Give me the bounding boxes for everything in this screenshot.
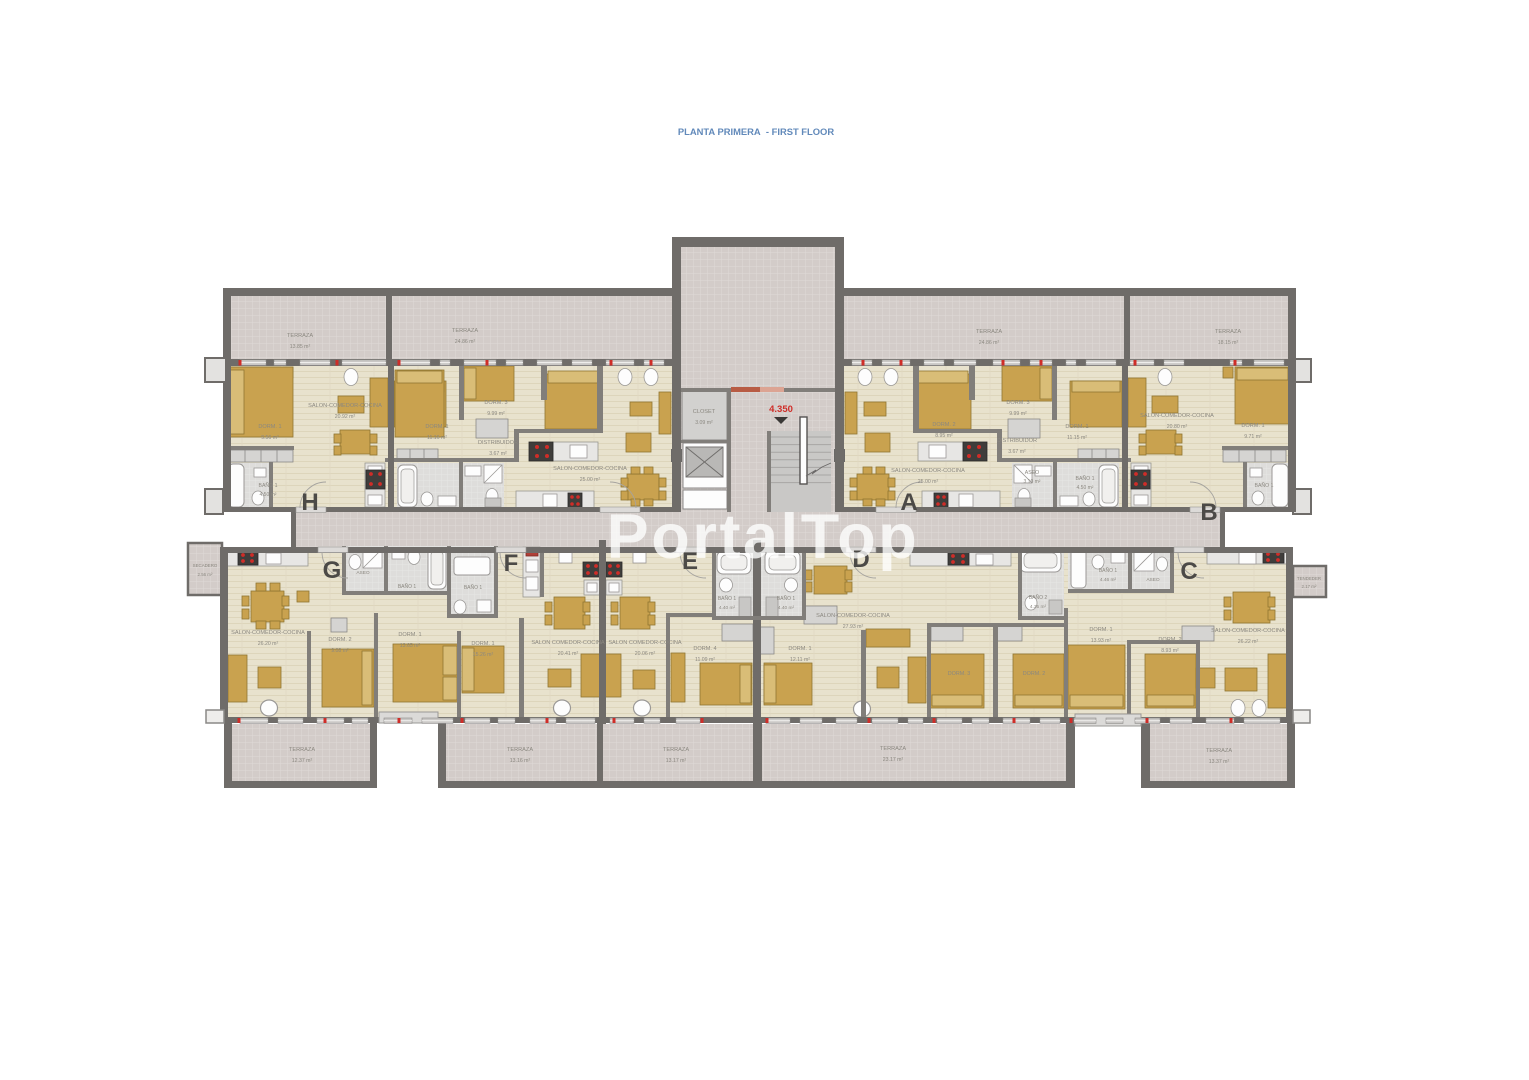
svg-text:DORM. 2: DORM. 2 xyxy=(1158,637,1181,643)
svg-text:24.86 m²: 24.86 m² xyxy=(455,339,476,345)
svg-text:TERRAZA: TERRAZA xyxy=(507,747,533,753)
svg-text:DORM. 1: DORM. 1 xyxy=(398,632,421,638)
svg-text:20.06 m²: 20.06 m² xyxy=(635,651,656,657)
svg-text:BAÑO 1: BAÑO 1 xyxy=(258,482,277,489)
svg-text:ASEO: ASEO xyxy=(1025,470,1039,476)
svg-text:TERRAZA: TERRAZA xyxy=(289,747,315,753)
svg-text:4.50 m²: 4.50 m² xyxy=(1077,485,1094,491)
svg-text:4.40 m²: 4.40 m² xyxy=(778,605,795,611)
svg-text:DORM. 1: DORM. 1 xyxy=(1089,627,1112,633)
svg-text:PLANTA PRIMERA - FIRST FLOOR: PLANTA PRIMERA - FIRST FLOOR xyxy=(678,126,834,137)
svg-text:CLOSET: CLOSET xyxy=(693,409,716,415)
svg-text:3.10 m²: 3.10 m² xyxy=(1024,479,1041,485)
svg-text:4.40 m²: 4.40 m² xyxy=(719,605,736,611)
svg-text:BAÑO 1: BAÑO 1 xyxy=(1075,475,1094,482)
svg-text:BAÑO 1: BAÑO 1 xyxy=(398,583,417,590)
svg-text:3.09 m²: 3.09 m² xyxy=(695,420,713,426)
svg-text:4.350: 4.350 xyxy=(769,404,793,415)
svg-text:13.93 m²: 13.93 m² xyxy=(1091,638,1112,644)
svg-text:BAÑO 1: BAÑO 1 xyxy=(777,595,796,602)
svg-text:4.50 m²: 4.50 m² xyxy=(260,492,277,498)
svg-text:DORM. 1: DORM. 1 xyxy=(425,424,448,430)
svg-text:25.00 m²: 25.00 m² xyxy=(918,479,939,485)
svg-text:BAÑO 1: BAÑO 1 xyxy=(1099,567,1118,574)
svg-text:12.11 m²: 12.11 m² xyxy=(790,657,810,663)
svg-text:20.80 m²: 20.80 m² xyxy=(1167,424,1188,430)
svg-text:9.08 m²: 9.08 m² xyxy=(331,648,349,654)
svg-text:18.15 m²: 18.15 m² xyxy=(1218,340,1239,346)
svg-text:SALON-COMEDOR-COCINA: SALON-COMEDOR-COCINA xyxy=(1211,628,1285,634)
svg-text:4.35 m²: 4.35 m² xyxy=(1030,604,1047,610)
svg-text:F: F xyxy=(504,550,519,577)
svg-text:DORM. 2: DORM. 2 xyxy=(328,637,351,643)
svg-text:26.22 m²: 26.22 m² xyxy=(1238,639,1259,645)
svg-text:DORM. 1: DORM. 1 xyxy=(471,641,494,647)
svg-text:TERRAZA: TERRAZA xyxy=(287,333,313,339)
svg-text:DORM. 2: DORM. 2 xyxy=(1023,671,1045,677)
svg-text:ASEO: ASEO xyxy=(1146,577,1160,583)
svg-text:TERRAZA: TERRAZA xyxy=(880,746,906,752)
svg-text:2.17 m²: 2.17 m² xyxy=(1302,584,1317,589)
svg-text:ASEO: ASEO xyxy=(356,570,370,576)
svg-text:3.67 m²: 3.67 m² xyxy=(489,451,507,457)
svg-text:27.93 m²: 27.93 m² xyxy=(843,624,864,630)
svg-text:9.56 m²: 9.56 m² xyxy=(261,435,279,441)
svg-text:BAÑO 2: BAÑO 2 xyxy=(1029,594,1048,601)
svg-text:13.17 m²: 13.17 m² xyxy=(666,758,687,764)
svg-text:23.17 m²: 23.17 m² xyxy=(883,757,904,763)
svg-text:8.95 m²: 8.95 m² xyxy=(935,433,953,439)
svg-text:24.86 m²: 24.86 m² xyxy=(979,340,1000,346)
svg-text:8.93 m²: 8.93 m² xyxy=(1161,648,1179,654)
svg-text:20.41 m²: 20.41 m² xyxy=(558,651,579,657)
svg-text:C: C xyxy=(1180,558,1197,585)
svg-text:TENDEDER: TENDEDER xyxy=(1297,576,1321,581)
svg-text:DORM. 2: DORM. 2 xyxy=(932,422,955,428)
svg-text:SALON-COMEDOR-COCINA: SALON-COMEDOR-COCINA xyxy=(891,468,965,474)
svg-text:13.85 m²: 13.85 m² xyxy=(290,344,311,350)
svg-text:TERRAZA: TERRAZA xyxy=(976,329,1002,335)
svg-text:SALON-COMEDOR-COCINA: SALON-COMEDOR-COCINA xyxy=(553,466,627,472)
svg-text:TERRAZA: TERRAZA xyxy=(663,747,689,753)
svg-text:BAÑO 1: BAÑO 1 xyxy=(718,595,737,602)
svg-text:DISTRIBUIDOR: DISTRIBUIDOR xyxy=(478,440,518,446)
svg-text:13.65 m²: 13.65 m² xyxy=(400,643,421,649)
svg-text:G: G xyxy=(323,557,342,584)
svg-text:DORM. 4: DORM. 4 xyxy=(693,646,716,652)
svg-text:26.20 m²: 26.20 m² xyxy=(258,641,279,647)
svg-text:DORM. 3: DORM. 3 xyxy=(484,400,507,406)
svg-text:20.92 m²: 20.92 m² xyxy=(335,414,356,420)
svg-text:9.99 m²: 9.99 m² xyxy=(487,411,505,417)
svg-text:TERRAZA: TERRAZA xyxy=(1206,748,1232,754)
svg-text:2.56 m²: 2.56 m² xyxy=(198,572,213,577)
svg-text:4.46 m²: 4.46 m² xyxy=(1100,577,1117,583)
svg-text:25.00 m²: 25.00 m² xyxy=(580,477,601,483)
svg-text:SALON COMEDOR-COCINA: SALON COMEDOR-COCINA xyxy=(531,640,605,646)
svg-text:12.37 m²: 12.37 m² xyxy=(292,758,313,764)
svg-text:11.15 m²: 11.15 m² xyxy=(1067,435,1087,441)
svg-text:BAÑO 1: BAÑO 1 xyxy=(464,584,483,591)
svg-text:H: H xyxy=(301,489,318,516)
svg-text:9.71 m²: 9.71 m² xyxy=(1244,434,1262,440)
svg-text:13.16 m²: 13.16 m² xyxy=(510,758,531,764)
svg-text:15.26 m²: 15.26 m² xyxy=(473,652,494,658)
svg-text:SALON-COMEDOR-COCINA: SALON-COMEDOR-COCINA xyxy=(308,403,382,409)
svg-text:TERRAZA: TERRAZA xyxy=(452,328,478,334)
svg-text:SALON-COMEDOR-COCINA: SALON-COMEDOR-COCINA xyxy=(231,630,305,636)
svg-text:TERRAZA: TERRAZA xyxy=(1215,329,1241,335)
svg-text:SALON-COMEDOR-COCINA: SALON-COMEDOR-COCINA xyxy=(1140,413,1214,419)
svg-text:DISTRIBUIDOR: DISTRIBUIDOR xyxy=(997,438,1037,444)
svg-text:DORM. 1: DORM. 1 xyxy=(258,424,281,430)
svg-text:DORM. 3: DORM. 3 xyxy=(1006,400,1029,406)
svg-text:PortalTop: PortalTop xyxy=(607,502,920,572)
svg-text:11.09 m²: 11.09 m² xyxy=(695,657,715,663)
svg-text:3.67 m²: 3.67 m² xyxy=(1008,449,1026,455)
svg-text:DORM. 1: DORM. 1 xyxy=(1065,424,1088,430)
svg-text:11.16 m²: 11.16 m² xyxy=(427,435,447,441)
svg-text:SECADERO: SECADERO xyxy=(193,563,218,568)
svg-text:13.37 m²: 13.37 m² xyxy=(1209,759,1230,765)
svg-text:SALON-COMEDOR-COCINA: SALON-COMEDOR-COCINA xyxy=(816,613,890,619)
svg-text:SALON COMEDOR-COCINA: SALON COMEDOR-COCINA xyxy=(608,640,682,646)
svg-text:DORM. 3: DORM. 3 xyxy=(948,671,970,677)
svg-text:BAÑO 1: BAÑO 1 xyxy=(1254,482,1273,489)
svg-text:DORM. 1: DORM. 1 xyxy=(1241,423,1264,429)
svg-text:9.99 m²: 9.99 m² xyxy=(1009,411,1027,417)
svg-text:DORM. 1: DORM. 1 xyxy=(788,646,811,652)
svg-text:B: B xyxy=(1200,499,1217,526)
